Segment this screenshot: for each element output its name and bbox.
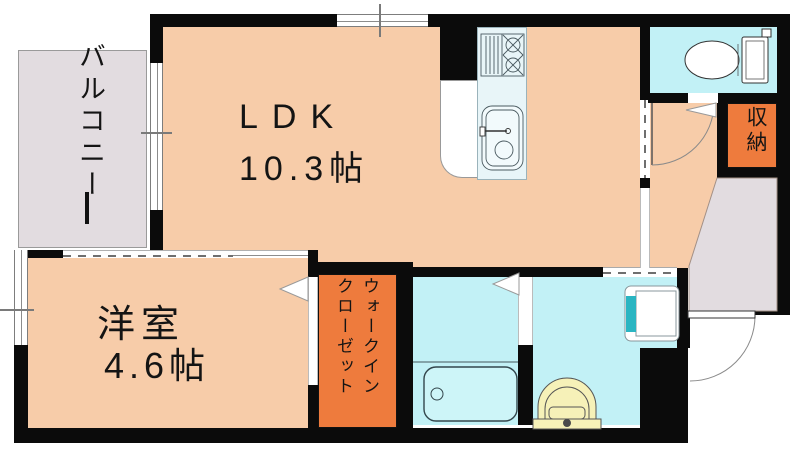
toilet-fixture	[685, 29, 771, 83]
balcony-label: バルコニー	[71, 42, 110, 237]
toilet-door-arrow	[686, 103, 716, 117]
floor-plan: LDK 10.3帖 洋室 4.6帖 バルコニー 収納 ウォークイン クローゼット	[0, 0, 800, 449]
washbasin-fixture	[533, 378, 601, 429]
entrance-door-arc	[690, 316, 755, 381]
entrance-door-leaf	[688, 311, 755, 318]
bathroom-door-arrow	[493, 273, 519, 295]
gas-stove-fixture	[481, 34, 524, 76]
kitchen-sink-fixture	[480, 106, 523, 170]
ldk-size: 10.3帖	[239, 141, 369, 190]
washing-machine-pan	[625, 286, 679, 341]
bathtub-fixture	[413, 362, 518, 421]
ldk-label: LDK	[239, 98, 347, 137]
walk-in-closet-label: ウォークイン クローゼット	[330, 277, 382, 425]
western-room-size: 4.6帖	[104, 337, 210, 389]
entrance-area	[689, 178, 777, 311]
storage-label: 収納	[740, 106, 770, 164]
walk-in-closet-label-line2: クローゼット	[330, 277, 356, 425]
walk-in-closet-label-line1: ウォークイン	[356, 277, 382, 425]
wic-door-arrow	[280, 277, 308, 301]
